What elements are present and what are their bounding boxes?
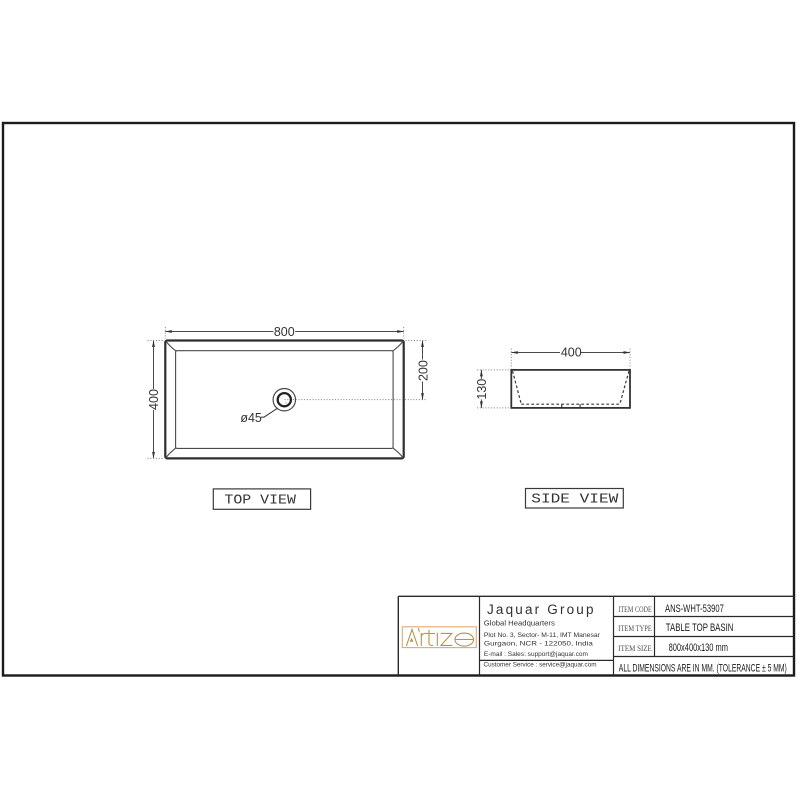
- svg-text:TABLE TOP BASIN: TABLE TOP BASIN: [666, 622, 734, 634]
- svg-text:ANS-WHT-53907: ANS-WHT-53907: [665, 603, 724, 615]
- svg-text:400: 400: [147, 389, 161, 410]
- svg-text:E-mail : Sales: support@jaquar: E-mail : Sales: support@jaquar.com: [484, 651, 588, 658]
- svg-text:ALL DIMENSIONS ARE IN MM. (TOL: ALL DIMENSIONS ARE IN MM. (TOLERANCE ± 5…: [619, 663, 787, 675]
- svg-text:Gurgaon, NCR - 122050, India: Gurgaon, NCR - 122050, India: [484, 641, 593, 648]
- svg-text:130: 130: [475, 379, 489, 400]
- svg-text:ITEM CODE: ITEM CODE: [618, 605, 652, 614]
- svg-text:SIDE VIEW: SIDE VIEW: [531, 492, 619, 508]
- svg-text:TOP VIEW: TOP VIEW: [224, 492, 296, 508]
- svg-text:200: 200: [417, 360, 431, 381]
- svg-text:400: 400: [561, 346, 582, 360]
- svg-text:800x400x130 mm: 800x400x130 mm: [669, 642, 728, 654]
- svg-text:ø45: ø45: [240, 411, 262, 425]
- svg-text:ITEM SIZE: ITEM SIZE: [618, 644, 652, 653]
- svg-text:Global Headquarters: Global Headquarters: [484, 621, 556, 628]
- svg-text:Plot No. 3, Sector- M-11, IMT: Plot No. 3, Sector- M-11, IMT Manesar: [484, 632, 601, 639]
- svg-text:ITEM TYPE: ITEM TYPE: [618, 624, 652, 633]
- svg-text:800: 800: [274, 325, 295, 339]
- svg-text:Customer Service : service@jaq: Customer Service : service@jaquar.com: [484, 662, 597, 669]
